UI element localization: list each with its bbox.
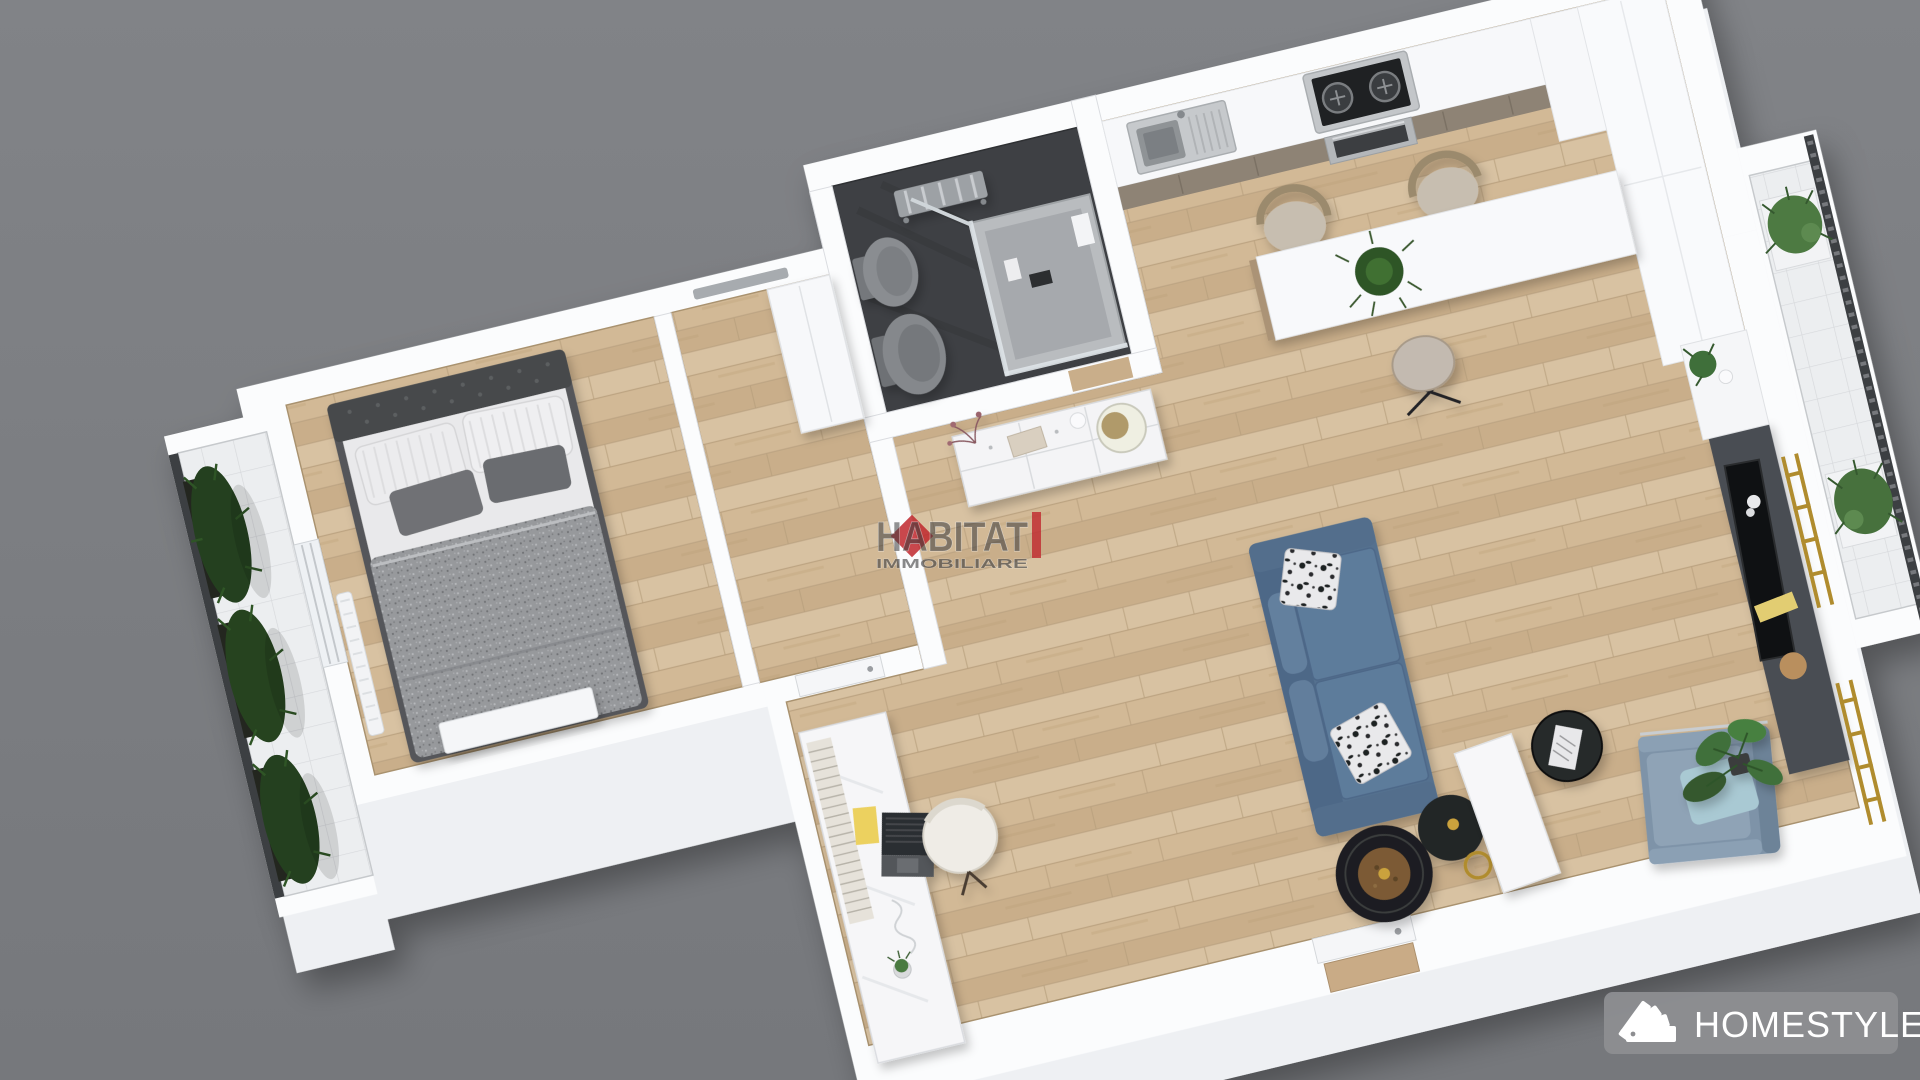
floorplan-canvas: HABITAT IMMOBILIARE HOMESTYLER — [0, 0, 1920, 1080]
yellow-notepad — [853, 806, 880, 845]
homestyler-label: HOMESTYLER — [1694, 1004, 1920, 1045]
homestyler-badge: HOMESTYLER — [1604, 992, 1920, 1054]
floral-pillow — [1279, 548, 1341, 610]
watermark-subtitle: IMMOBILIARE — [876, 557, 1028, 571]
watermark-title: HABITAT — [876, 513, 1028, 560]
watermark-accent-bar — [1032, 512, 1041, 558]
floorplan-render: HABITAT IMMOBILIARE HOMESTYLER — [0, 0, 1920, 1080]
watermark: HABITAT IMMOBILIARE — [876, 512, 1041, 571]
